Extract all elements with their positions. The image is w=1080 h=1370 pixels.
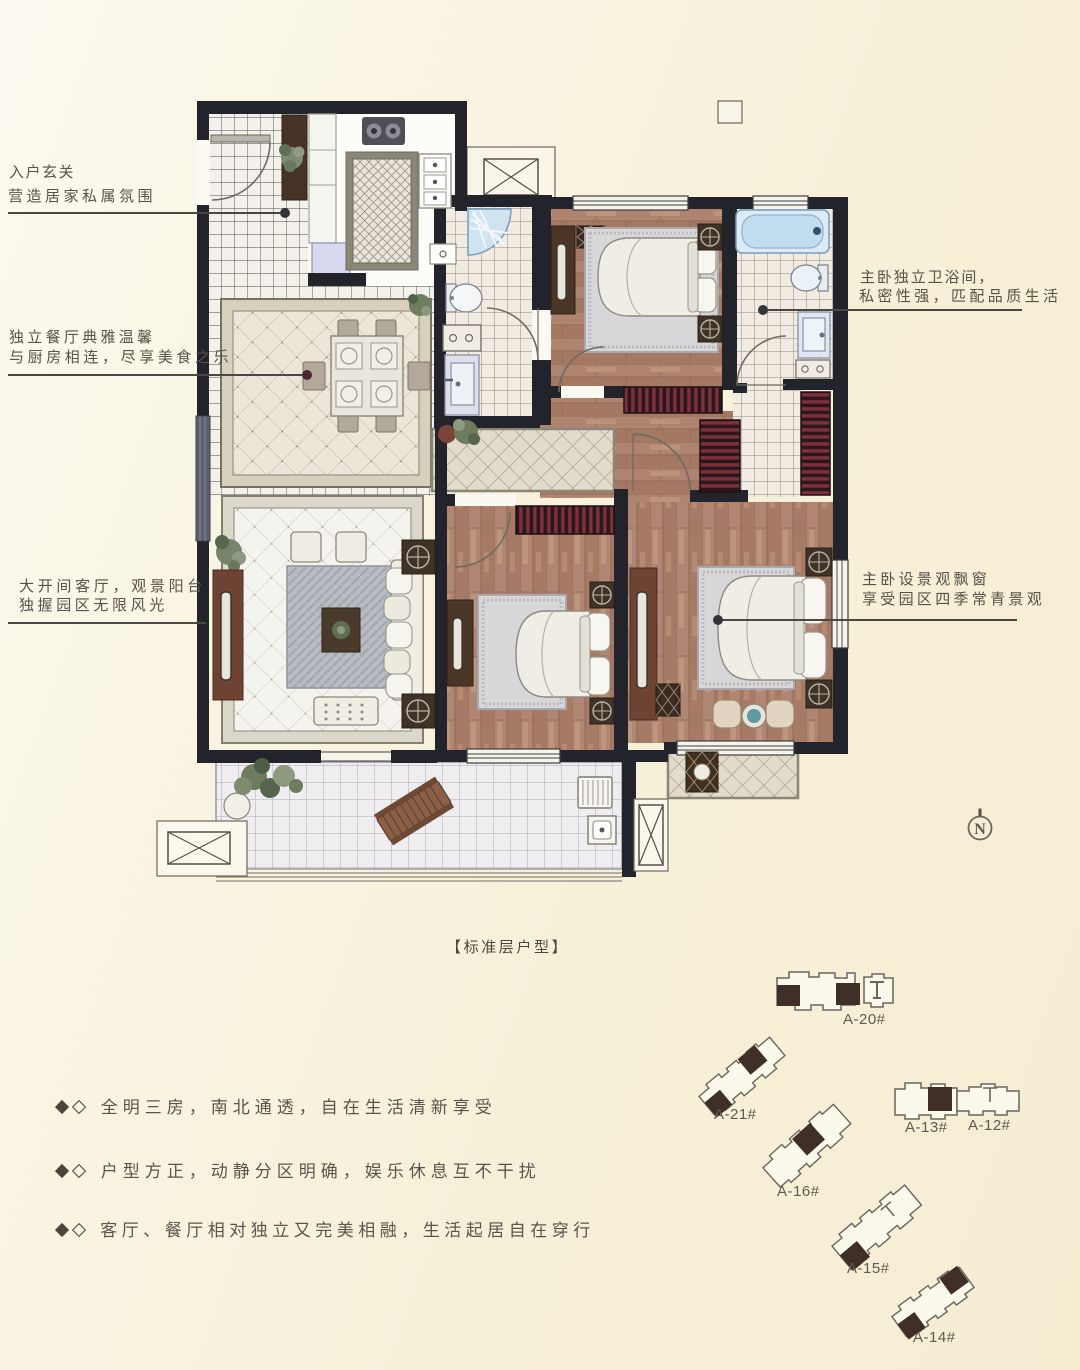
svg-text:N: N xyxy=(974,821,986,838)
